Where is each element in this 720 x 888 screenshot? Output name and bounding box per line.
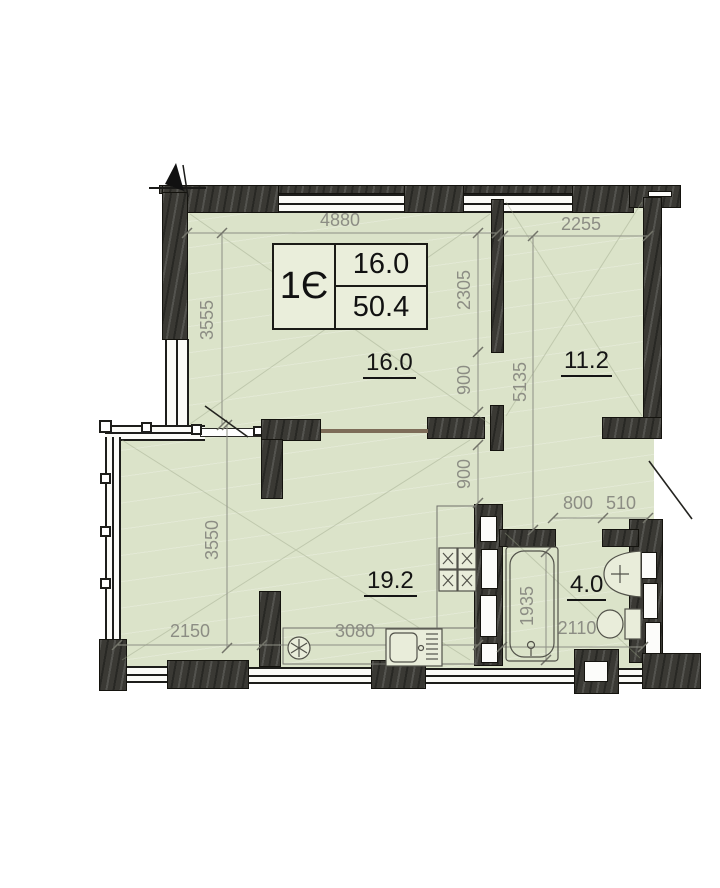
vent-niche [480, 516, 497, 542]
opening-lintel-line [320, 429, 428, 433]
vent-niche [641, 552, 657, 579]
dim-partition-upper: 2305 [454, 245, 474, 335]
partition-tee-block [428, 418, 484, 438]
partition-stub [491, 406, 503, 450]
floor-plan: 1Є 16.0 50.4 16.0 11.2 19.2 4.0 4880 225… [0, 0, 720, 888]
dim-bathtub-length: 1935 [517, 561, 537, 651]
dim-bath-niche-width: 510 [599, 493, 643, 513]
window-bottom-a [122, 666, 168, 683]
window-bottom-b [248, 667, 372, 684]
room-label-bathroom: 4.0 [567, 572, 606, 601]
dim-kitchen-width: 3080 [315, 621, 395, 641]
entry-door-swing [649, 461, 692, 519]
apartment-info-box: 1Є 16.0 50.4 [272, 243, 428, 330]
wall-right-upper [644, 198, 661, 418]
wall-stub-bottom [260, 592, 280, 666]
dim-hall-height: 5135 [510, 337, 530, 427]
dim-bathroom-width: 2110 [544, 618, 610, 638]
wall-top-pier-3 [573, 186, 633, 212]
window-bottom-d [618, 668, 643, 684]
dim-kitchen-height: 3550 [202, 495, 222, 585]
wall-entry-pier [603, 418, 661, 438]
wall-L-horizontal [262, 420, 320, 440]
wall-bottom-left-corner [100, 640, 126, 690]
dim-living-width: 4880 [300, 210, 380, 230]
unit-area-upper: 16.0 [336, 245, 426, 287]
wall-bath-top-left [500, 530, 555, 546]
dim-opening-upper: 900 [454, 345, 474, 415]
unit-area-total: 50.4 [336, 287, 426, 329]
room-label-kitchen: 19.2 [364, 568, 417, 597]
dim-opening-lower: 900 [454, 439, 474, 509]
wall-bottom-pier-2 [372, 661, 425, 688]
wall-bottom-pier-1 [168, 661, 248, 688]
wall-bath-top-right [603, 530, 638, 546]
glazing-mullion [100, 578, 111, 589]
vent-niche [481, 549, 498, 589]
wall-bottom-right-corner [643, 654, 700, 688]
dim-living-height: 3555 [197, 275, 217, 365]
vent-niche [481, 643, 498, 663]
wall-L-vertical [262, 440, 282, 498]
partition-upper [492, 200, 503, 352]
glazing-mullion [100, 526, 111, 537]
wall-top-pier-2 [405, 186, 463, 212]
glazing-mullion [99, 420, 112, 433]
vent-niche [643, 583, 658, 619]
room-label-living: 16.0 [363, 350, 416, 379]
top-right-notch [648, 191, 672, 197]
dim-balcony-width: 2150 [150, 621, 230, 641]
window-top-right [463, 194, 573, 213]
dim-bath-door-width: 800 [556, 493, 600, 513]
vent-niche [480, 595, 497, 637]
window-bottom-c [425, 668, 575, 684]
window-left [165, 339, 189, 425]
column-shaft [584, 661, 608, 682]
glazing-mullion [100, 473, 111, 484]
glazing-mullion [191, 424, 202, 435]
unit-type-label: 1Є [274, 245, 336, 328]
wall-left-pier [163, 193, 187, 339]
dim-bedroom-width: 2255 [541, 214, 621, 234]
glazing-mullion [141, 422, 152, 433]
balcony-glazing-left [105, 437, 121, 640]
room-label-bedroom: 11.2 [561, 348, 612, 377]
